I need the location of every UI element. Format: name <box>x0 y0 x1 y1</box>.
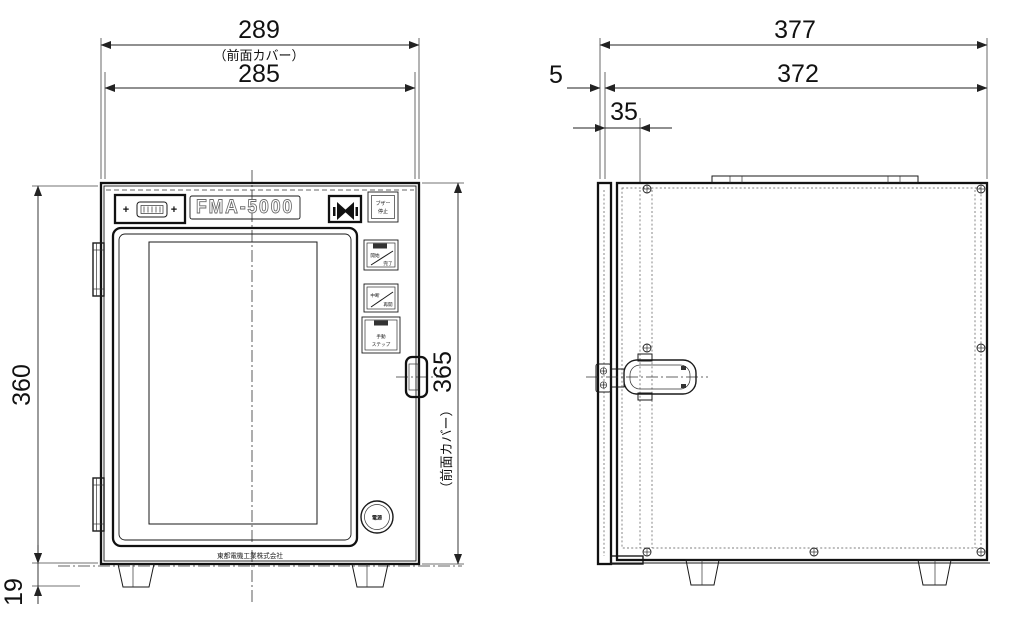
power-label: 電源 <box>372 515 382 522</box>
finish-label: 完了 <box>383 260 393 267</box>
dim-label-372: 372 <box>777 60 819 88</box>
technical-drawing: 289 （前面カバー） 285 360 19 <box>0 0 1024 628</box>
buzzer-stop-label-1: ブザー <box>375 200 390 207</box>
dim-label-19: 19 <box>0 578 28 606</box>
model-label: FMA-5000 <box>196 197 294 218</box>
dim-note-front-cover-height: （前面カバー） <box>439 403 454 494</box>
start-label: 開始 <box>370 252 380 259</box>
dim-label-5: 5 <box>549 61 563 89</box>
screw-icon <box>977 344 985 352</box>
pause-label: 中断 <box>370 292 380 299</box>
dim-label-360: 360 <box>8 364 36 406</box>
dim-label-365: 365 <box>429 351 457 393</box>
screw-icon <box>977 548 985 556</box>
plus-mark-left: + <box>123 204 129 216</box>
drawing-canvas: 289 （前面カバー） 285 360 19 <box>0 0 1024 628</box>
latch-pad <box>681 366 686 370</box>
dim-label-377: 377 <box>774 16 816 44</box>
company-label: 東都電機工業株式会社 <box>217 551 283 560</box>
dim-label-285: 285 <box>238 60 280 88</box>
model-nameplate: FMA-5000 <box>190 196 300 219</box>
led-indicator <box>373 244 387 249</box>
screw-icon <box>643 548 651 556</box>
plus-mark-right: + <box>171 204 177 216</box>
screw-icon <box>643 344 651 352</box>
screw-icon <box>977 185 985 193</box>
manual-label: 手動 <box>376 333 386 340</box>
screw-icon <box>600 368 606 374</box>
dim-label-35: 35 <box>610 98 638 126</box>
buzzer-stop-label-2: 停止 <box>378 208 388 215</box>
screw-icon <box>643 185 651 193</box>
latch-pad <box>681 384 686 388</box>
led-indicator <box>374 321 388 326</box>
dim-label-289: 289 <box>238 16 280 44</box>
screw-icon <box>600 382 606 388</box>
background <box>0 0 1024 628</box>
screw-icon <box>810 548 818 556</box>
